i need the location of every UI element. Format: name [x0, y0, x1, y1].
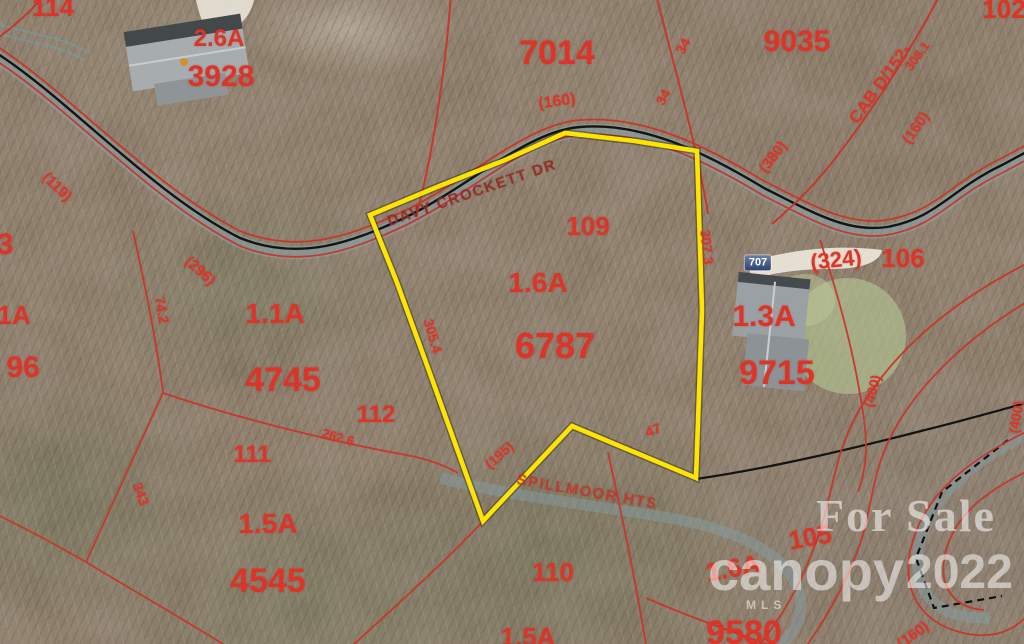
- watermark-mls: MLS: [746, 598, 786, 612]
- parcel-id-9580: 9580: [706, 616, 782, 644]
- gis-parcel-aerial-map: 114 2.6A 3928 7014 (160) 9035 CAB D/152-…: [0, 0, 1024, 644]
- parcel-id-6787: 6787: [515, 328, 595, 364]
- parcel-id-9715: 9715: [739, 356, 815, 390]
- street-number-106: 106: [881, 245, 924, 271]
- watermark-for-sale: For Sale: [816, 489, 996, 542]
- edge-label-96: 96: [6, 353, 39, 383]
- street-number-102: 102: [982, 0, 1024, 22]
- acreage-4545: 1.5A: [238, 510, 297, 538]
- street-number-109: 109: [566, 213, 609, 239]
- watermark-year: 2022: [906, 545, 1013, 600]
- parcel-id-9035: 9035: [764, 27, 831, 57]
- watermark-canopy-logo: canopy: [708, 538, 904, 603]
- parcel-id-7014: 7014: [519, 36, 595, 70]
- acreage-4745: 1.1A: [245, 300, 304, 328]
- street-number-111: 111: [233, 443, 270, 467]
- dimension-307-3: 307.3: [698, 229, 716, 265]
- street-number-114: 114: [32, 0, 74, 20]
- plat-324: (324): [809, 246, 862, 273]
- acreage-110: 1.5A: [501, 624, 556, 644]
- acreage-subject: 1.6A: [508, 269, 567, 297]
- acreage-9715: 1.3A: [732, 302, 795, 332]
- row-width-400-edge: (400): [1006, 400, 1024, 435]
- street-number-112: 112: [357, 403, 396, 427]
- parcel-id-4545: 4545: [230, 564, 306, 598]
- parcel-id-4745: 4745: [245, 363, 321, 397]
- acreage-3928: 2.6A: [194, 27, 245, 51]
- dimension-74-2: 74.2: [153, 295, 172, 324]
- parcel-id-3928: 3928: [188, 62, 255, 92]
- house-number-707-badge: 707: [745, 255, 771, 270]
- edge-label-1a: 1A: [0, 302, 31, 328]
- edge-label-3: 3: [0, 230, 13, 260]
- street-number-110: 110: [532, 559, 574, 585]
